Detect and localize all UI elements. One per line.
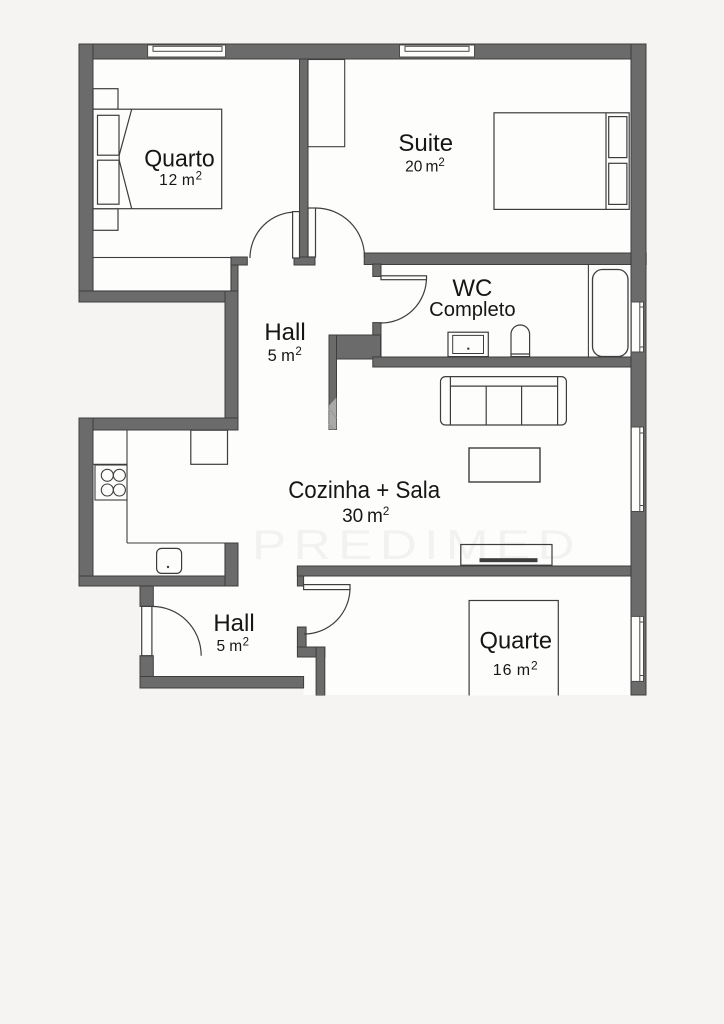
svg-text:Completo: Completo (429, 299, 516, 321)
svg-text:Cozinha + Sala: Cozinha + Sala (288, 477, 441, 504)
svg-text:Hall: Hall (264, 319, 305, 346)
svg-text:PREDIMED: PREDIMED (252, 521, 582, 568)
svg-text:Quarte: Quarte (480, 628, 553, 655)
svg-text:30 m2: 30 m2 (342, 506, 389, 527)
svg-text:Hall: Hall (213, 610, 254, 637)
svg-text:Quarto: Quarto (144, 146, 215, 173)
svg-text:WC: WC (452, 275, 492, 302)
svg-text:Suite: Suite (398, 130, 453, 157)
